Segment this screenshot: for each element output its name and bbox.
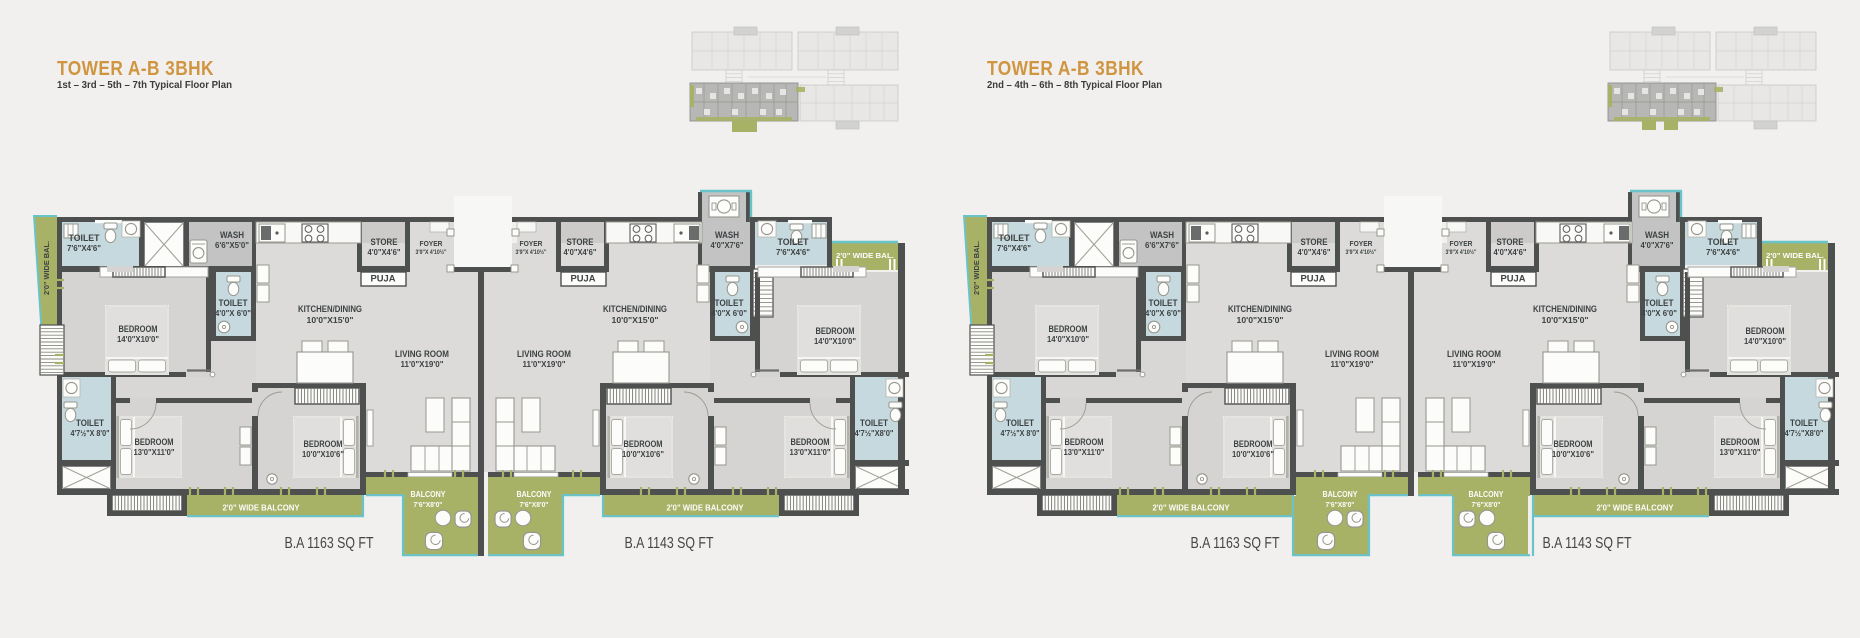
svg-text:WASH: WASH [1150,230,1174,240]
svg-text:10'0"X15'0": 10'0"X15'0" [612,315,659,325]
svg-text:4'0"X7'6": 4'0"X7'6" [1641,241,1674,250]
svg-text:7'6"X8'0": 7'6"X8'0" [1326,500,1355,509]
svg-text:PUJA: PUJA [571,274,596,285]
svg-text:13'0"X11'0": 13'0"X11'0" [1064,447,1105,457]
svg-text:TOILET: TOILET [69,233,100,243]
svg-text:BALCONY: BALCONY [1323,489,1358,499]
svg-text:1st – 3rd – 5th – 7th Typical: 1st – 3rd – 5th – 7th Typical Floor Plan [57,79,232,91]
svg-text:FOYER: FOYER [1350,241,1373,248]
svg-text:7'6"X8'0": 7'6"X8'0" [414,500,443,509]
svg-text:KITCHEN/DINING: KITCHEN/DINING [298,304,362,315]
svg-text:TOILET: TOILET [1006,418,1034,428]
svg-text:TOWER A-B 3BHK: TOWER A-B 3BHK [57,58,214,80]
svg-text:4'7½"X 8'0": 4'7½"X 8'0" [1001,429,1040,438]
svg-text:STORE: STORE [1497,237,1524,247]
svg-text:11'0"X19'0": 11'0"X19'0" [401,359,444,369]
svg-text:WASH: WASH [715,230,739,240]
svg-text:2'0" WIDE BAL.: 2'0" WIDE BAL. [1766,251,1824,260]
svg-text:10'0"X15'0": 10'0"X15'0" [1542,315,1589,325]
svg-text:TOILET: TOILET [1149,298,1178,308]
svg-text:4'0"X 6'0": 4'0"X 6'0" [1641,309,1677,318]
svg-text:10'0"X15'0": 10'0"X15'0" [307,315,354,325]
svg-text:2'0" WIDE BAL.: 2'0" WIDE BAL. [836,251,894,260]
svg-text:4'0"X 6'0": 4'0"X 6'0" [1145,309,1181,318]
svg-text:WASH: WASH [1645,230,1669,240]
svg-text:10'0"X10'6": 10'0"X10'6" [622,449,664,459]
svg-text:STORE: STORE [567,237,594,247]
svg-text:3'9"X 4'10½": 3'9"X 4'10½" [516,249,547,256]
svg-text:4'7½"X8'0": 4'7½"X8'0" [1785,429,1824,438]
svg-text:B.A 1143 SQ FT: B.A 1143 SQ FT [1543,535,1632,552]
svg-text:10'0"X10'6": 10'0"X10'6" [302,449,344,459]
svg-text:6'6"X7'6": 6'6"X7'6" [1145,241,1179,250]
svg-text:14'0"X10'0": 14'0"X10'0" [1744,336,1786,346]
svg-text:4'0"X4'6": 4'0"X4'6" [1298,248,1331,257]
svg-text:3'9"X 4'10½": 3'9"X 4'10½" [416,249,447,256]
svg-text:STORE: STORE [371,237,398,247]
svg-text:3'9"X 4'10½": 3'9"X 4'10½" [1346,249,1377,256]
svg-text:4'0"X 6'0": 4'0"X 6'0" [711,309,747,318]
svg-text:2nd – 4th – 6th – 8th Typical: 2nd – 4th – 6th – 8th Typical Floor Plan [987,79,1162,91]
svg-text:4'0"X4'6": 4'0"X4'6" [368,248,401,257]
svg-text:BALCONY: BALCONY [517,489,552,499]
svg-text:TOILET: TOILET [1790,418,1818,428]
svg-text:TOILET: TOILET [219,298,248,308]
svg-text:4'7½"X8'0": 4'7½"X8'0" [855,429,894,438]
svg-text:STORE: STORE [1301,237,1328,247]
svg-text:KITCHEN/DINING: KITCHEN/DINING [1533,304,1597,315]
svg-text:10'0"X15'0": 10'0"X15'0" [1237,315,1284,325]
svg-text:4'0"X4'6": 4'0"X4'6" [1494,248,1527,257]
svg-text:4'0"X7'6": 4'0"X7'6" [711,241,744,250]
svg-text:2'0" WIDE BALCONY: 2'0" WIDE BALCONY [1153,504,1231,513]
svg-text:KITCHEN/DINING: KITCHEN/DINING [1228,304,1292,315]
svg-text:B.A 1143 SQ FT: B.A 1143 SQ FT [625,535,714,552]
svg-text:2'0" WIDE BAL.: 2'0" WIDE BAL. [42,241,51,295]
svg-text:KITCHEN/DINING: KITCHEN/DINING [603,304,667,315]
svg-text:4'0"X4'6": 4'0"X4'6" [564,248,597,257]
svg-text:2'0" WIDE BAL.: 2'0" WIDE BAL. [972,241,981,295]
svg-text:B.A 1163 SQ FT: B.A 1163 SQ FT [1191,535,1280,552]
svg-text:PUJA: PUJA [1501,274,1526,285]
svg-text:TOILET: TOILET [778,237,809,247]
svg-text:14'0"X10'0": 14'0"X10'0" [814,336,856,346]
svg-text:BALCONY: BALCONY [1469,489,1504,499]
svg-text:11'0"X19'0": 11'0"X19'0" [523,359,566,369]
svg-text:4'7½"X 8'0": 4'7½"X 8'0" [71,429,110,438]
svg-text:13'0"X11'0": 13'0"X11'0" [1720,447,1761,457]
svg-text:13'0"X11'0": 13'0"X11'0" [134,447,175,457]
svg-text:B.A 1163 SQ FT: B.A 1163 SQ FT [285,535,374,552]
svg-text:FOYER: FOYER [1450,241,1473,248]
svg-text:TOILET: TOILET [76,418,104,428]
svg-text:10'0"X10'6": 10'0"X10'6" [1232,449,1274,459]
svg-text:2'0" WIDE BALCONY: 2'0" WIDE BALCONY [223,504,301,513]
svg-text:7'6"X8'0": 7'6"X8'0" [1472,500,1501,509]
svg-text:TOILET: TOILET [1645,298,1674,308]
svg-text:FOYER: FOYER [520,241,543,248]
svg-text:BALCONY: BALCONY [411,489,446,499]
svg-text:2'0" WIDE BALCONY: 2'0" WIDE BALCONY [667,504,745,513]
svg-text:11'0"X19'0": 11'0"X19'0" [1331,359,1374,369]
svg-text:TOILET: TOILET [1708,237,1739,247]
svg-text:11'0"X19'0": 11'0"X19'0" [1453,359,1496,369]
svg-text:TOWER A-B 3BHK: TOWER A-B 3BHK [987,58,1144,80]
svg-text:14'0"X10'0": 14'0"X10'0" [117,334,159,344]
svg-text:FOYER: FOYER [420,241,443,248]
svg-text:13'0"X11'0": 13'0"X11'0" [790,447,831,457]
svg-text:4'0"X 6'0": 4'0"X 6'0" [215,309,251,318]
svg-text:6'6"X5'0": 6'6"X5'0" [215,241,249,250]
svg-text:PUJA: PUJA [371,274,396,285]
svg-text:7'6"X8'0": 7'6"X8'0" [520,500,549,509]
svg-text:14'0"X10'0": 14'0"X10'0" [1047,334,1089,344]
svg-text:PUJA: PUJA [1301,274,1326,285]
svg-text:TOILET: TOILET [715,298,744,308]
svg-text:7'6"X4'6": 7'6"X4'6" [776,248,810,257]
svg-text:7'6"X4'6": 7'6"X4'6" [997,244,1031,253]
svg-text:3'9"X 4'10½": 3'9"X 4'10½" [1446,249,1477,256]
svg-text:10'0"X10'6": 10'0"X10'6" [1552,449,1594,459]
svg-text:7'6"X4'6": 7'6"X4'6" [1706,248,1740,257]
svg-text:TOILET: TOILET [999,233,1030,243]
svg-text:TOILET: TOILET [860,418,888,428]
svg-text:7'6"X4'6": 7'6"X4'6" [67,244,101,253]
svg-text:WASH: WASH [220,230,244,240]
svg-text:2'0" WIDE BALCONY: 2'0" WIDE BALCONY [1597,504,1675,513]
